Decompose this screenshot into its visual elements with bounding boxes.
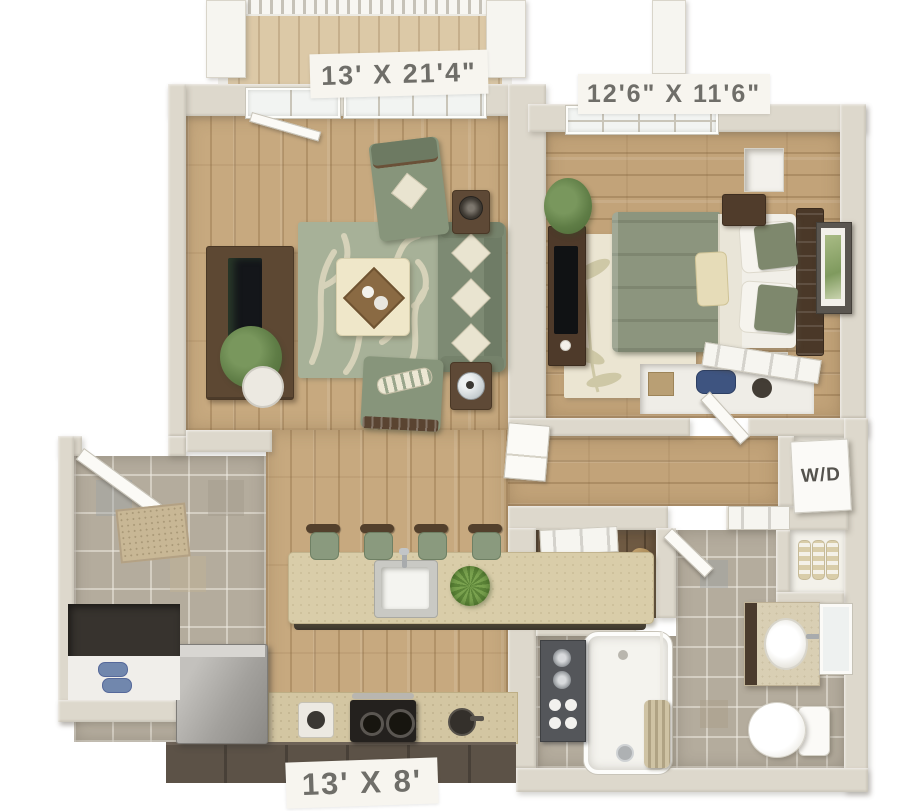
glass-lamp-cap: [466, 381, 474, 389]
roof-vent-post: [652, 0, 686, 74]
vanity-mirror: [820, 604, 852, 674]
stove-burner: [360, 712, 384, 736]
washer-dryer-label: W/D: [800, 464, 841, 488]
vanity-faucet: [806, 634, 820, 639]
floor-plan: W/D: [0, 0, 910, 811]
closet-storage-box: [648, 372, 674, 396]
balcony-post-right: [486, 0, 526, 78]
balcony-post-left: [206, 0, 246, 78]
utility-knob: [565, 717, 577, 729]
linen-stub-wall: [776, 530, 790, 592]
refrigerator: [176, 644, 268, 744]
bar-stool-seat: [310, 532, 339, 560]
utility-dial: [553, 671, 571, 689]
island-plant: [450, 566, 490, 606]
floor-plant-pot: [242, 366, 284, 408]
bathtub-faucet: [616, 744, 634, 762]
toilet-bowl: [748, 702, 806, 758]
ottoman-bench: [360, 356, 444, 432]
towel-roll: [826, 540, 839, 580]
hall-bottom-wall-left: [508, 506, 668, 530]
washer-dryer-unit: W/D: [790, 439, 852, 514]
entry-top-wall-b: [168, 436, 186, 456]
entry-bottom-wall: [58, 700, 178, 722]
bathroom-bottom-wall: [516, 768, 868, 792]
hallway-door-leaf: [504, 422, 551, 481]
entry-closet-interior: [68, 604, 180, 700]
living-bedroom-divider-wall: [508, 84, 546, 418]
nightstand-north: [722, 194, 766, 226]
living-room-dimensions-text: 13' X 21'4": [321, 56, 477, 91]
shoe: [98, 662, 128, 677]
table-lamp-dark: [459, 196, 483, 220]
bedroom-dimensions-text: 12'6" X 11'6": [587, 80, 761, 109]
coffee-maker: [298, 702, 334, 738]
bathtub-drain: [618, 650, 628, 660]
towel-roll: [812, 540, 825, 580]
utility-knob: [549, 717, 561, 729]
shoe: [102, 678, 132, 693]
coffee-carafe: [307, 711, 325, 729]
skillet: [448, 708, 476, 736]
bed-lumbar-pillow: [695, 251, 730, 307]
bar-stool-seat: [418, 532, 447, 560]
living-left-wall: [168, 84, 186, 436]
vanity-sink: [764, 618, 808, 670]
living-room-dimensions-plaque: 13' X 21'4": [309, 50, 488, 99]
stove-handle: [352, 693, 414, 699]
bed-pillow-sage: [753, 222, 798, 271]
tile-patch: [700, 700, 728, 728]
utility-knob: [565, 699, 577, 711]
refrigerator-top: [177, 645, 265, 657]
tile-patch: [208, 480, 244, 516]
skillet-handle: [470, 716, 484, 721]
wall-art-print: [825, 235, 841, 299]
towel-roll: [798, 540, 811, 580]
bedroom-tv: [554, 246, 578, 334]
wall-cube-shelf-north: [744, 148, 784, 192]
utility-panel: [540, 640, 586, 742]
bar-stool-seat: [364, 532, 393, 560]
living-entry-wall: [186, 430, 272, 452]
kitchen-dimensions-text: 13' X 8': [301, 763, 423, 803]
doormat: [115, 502, 190, 563]
tray-cup: [374, 296, 388, 310]
dresser-vase: [560, 340, 571, 351]
closet-duffel-bag: [696, 370, 736, 394]
ottoman-striped-pillow: [375, 366, 434, 396]
island-sink-basin: [381, 567, 429, 609]
balcony-railing: [218, 0, 512, 16]
bar-stool-seat: [472, 532, 501, 560]
accent-chair: [368, 136, 449, 242]
wall-art-frame: [816, 222, 852, 314]
tile-patch: [170, 556, 206, 592]
bedroom-dimensions-plaque: 12'6" X 11'6": [578, 74, 770, 114]
shower-curtain: [644, 700, 670, 768]
kitchen-dimensions-plaque: 13' X 8': [285, 757, 439, 808]
accent-chair-pillow: [391, 173, 427, 209]
tray-cup: [362, 286, 374, 298]
bedroom-plant: [544, 178, 592, 234]
stove-burner: [386, 709, 415, 738]
bed-pillow-sage: [754, 284, 799, 334]
stove-cooktop: [350, 700, 416, 742]
vanity-cabinet-edge: [745, 603, 757, 685]
utility-dial: [553, 649, 571, 667]
hall-closet-door: [728, 506, 790, 530]
island-faucet-head: [399, 548, 409, 555]
utility-knob: [549, 699, 561, 711]
closet-hat: [752, 378, 772, 398]
